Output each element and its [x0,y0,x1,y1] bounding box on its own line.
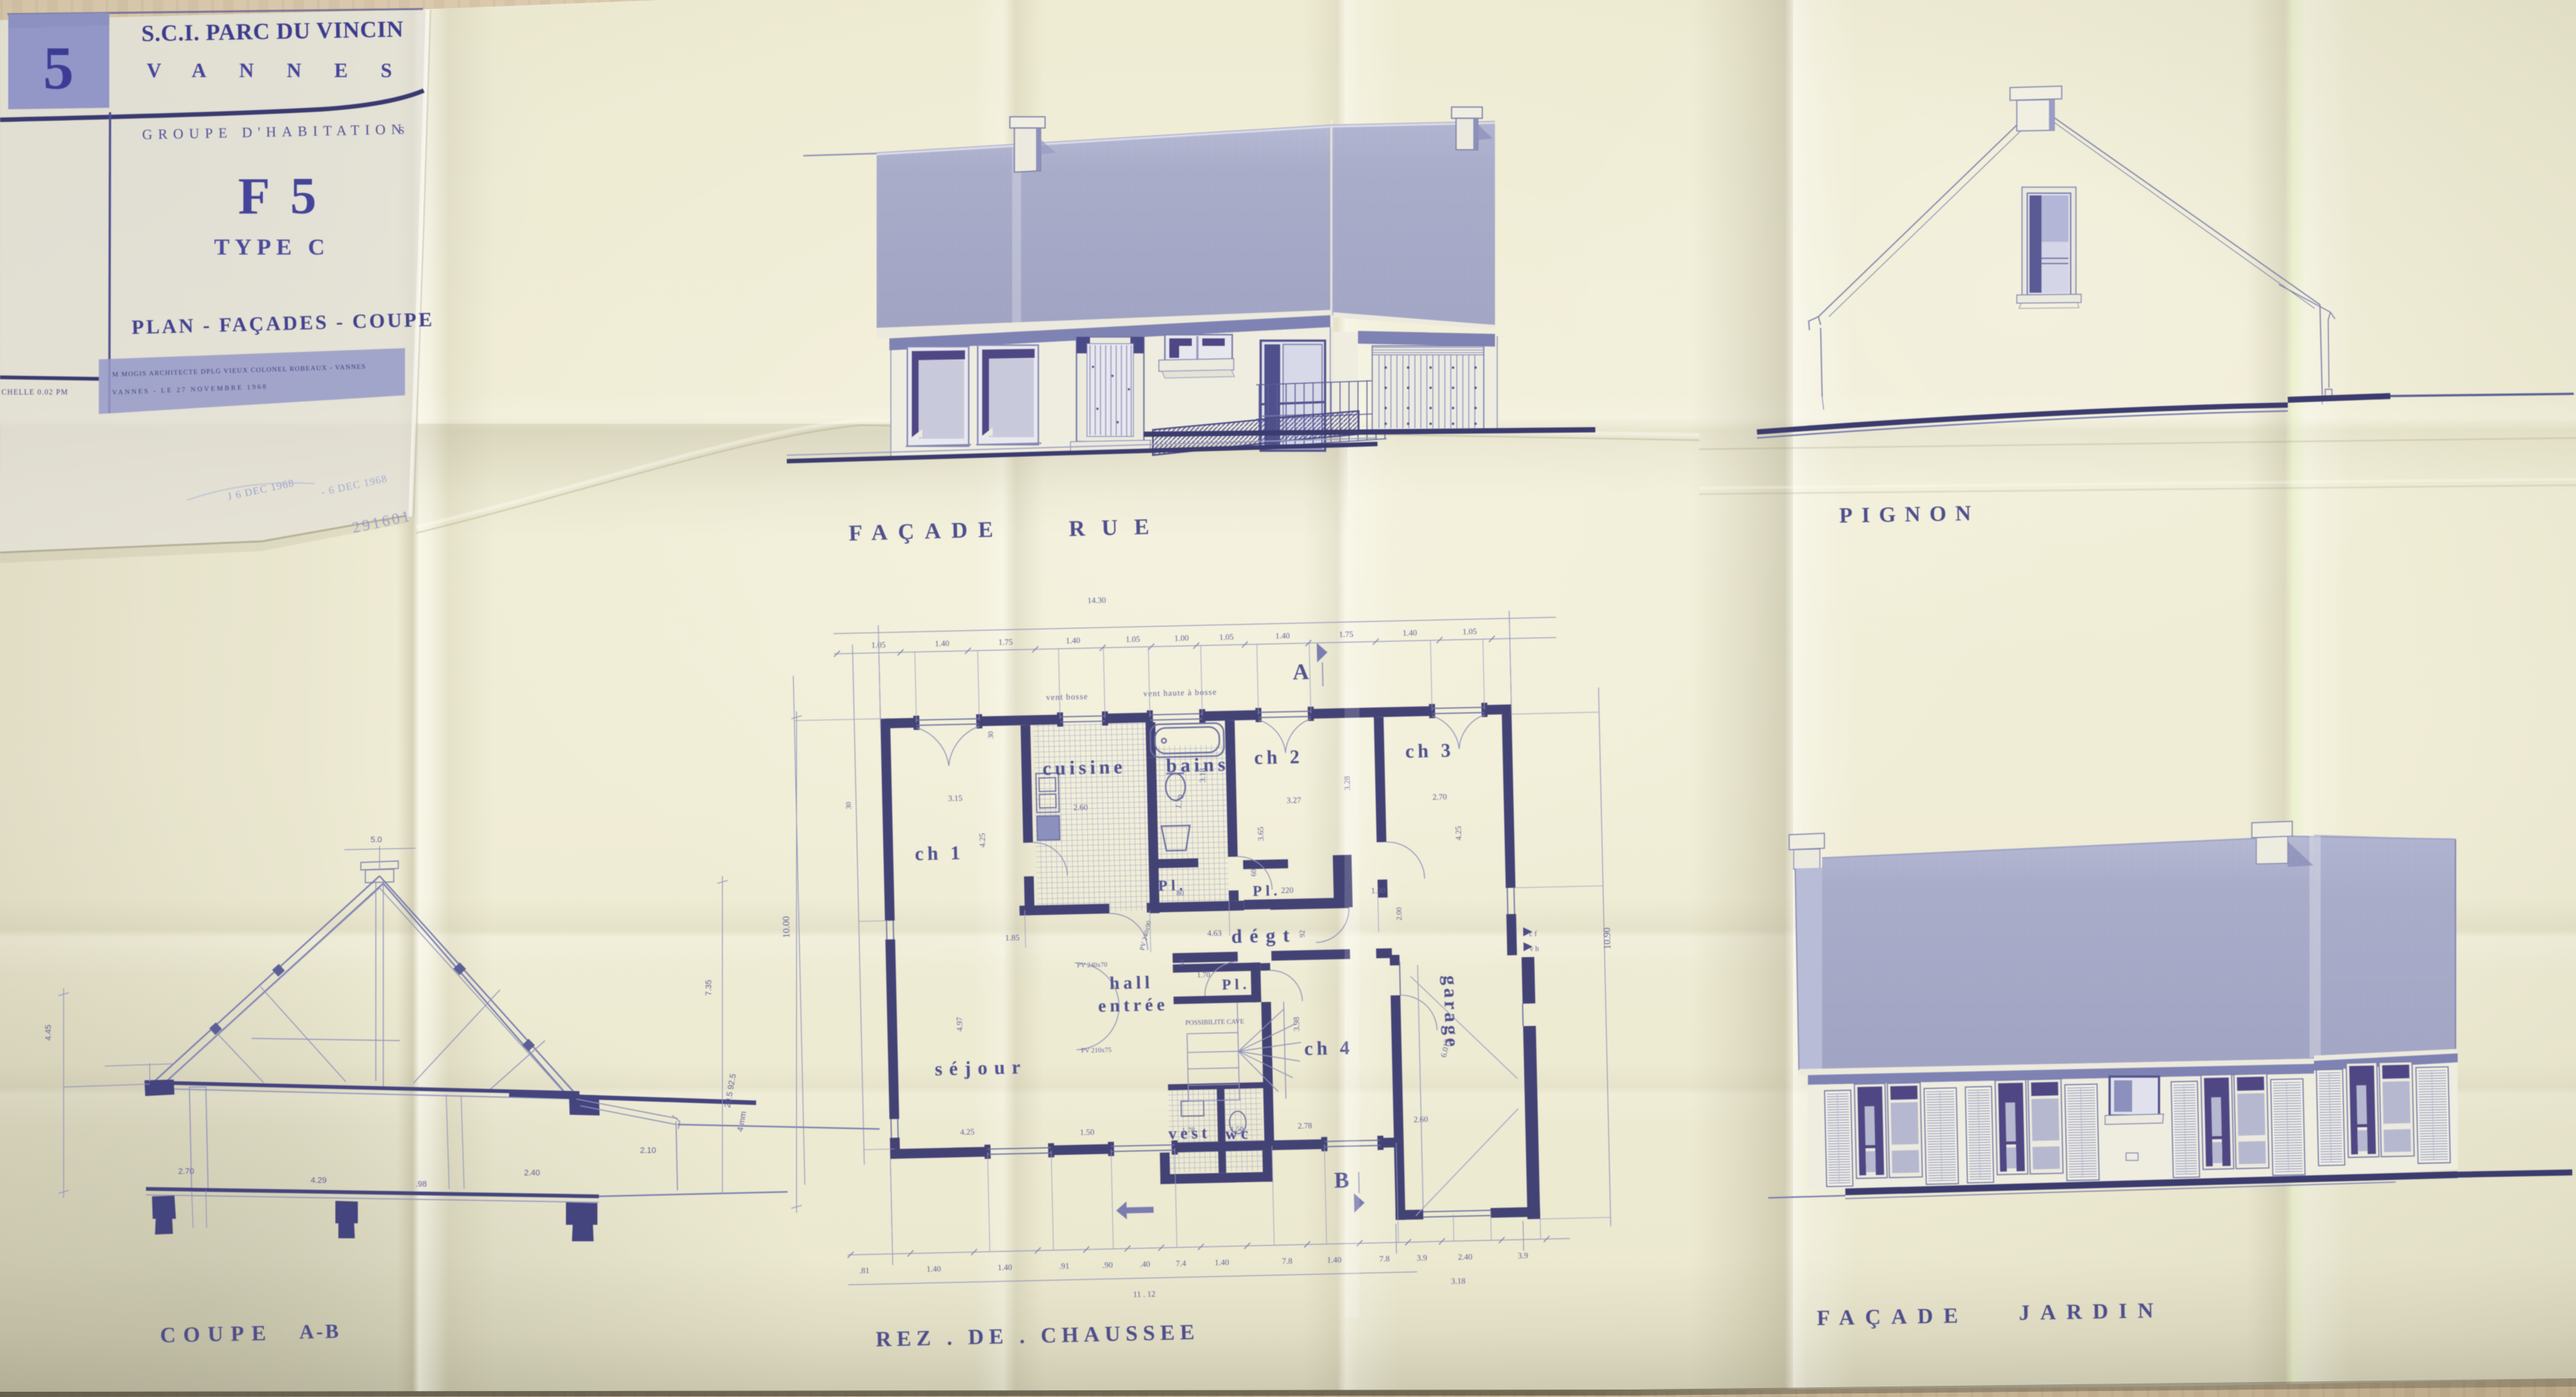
svg-text:10.00: 10.00 [780,916,792,939]
svg-text:4.97: 4.97 [955,1017,964,1032]
svg-text:4.45: 4.45 [44,1025,53,1041]
svg-text:2.70: 2.70 [178,1167,194,1176]
svg-text:ch 3: ch 3 [1405,740,1455,762]
svg-text:30: 30 [987,731,995,739]
svg-text:1.40: 1.40 [935,639,950,648]
svg-text:14.30: 14.30 [1087,596,1106,606]
svg-text:60: 60 [1250,869,1258,877]
svg-text:7.8: 7.8 [1379,1255,1390,1264]
svg-text:COUPE: COUPE [159,1321,273,1348]
svg-text:2.00: 2.00 [1395,907,1404,921]
svg-text:S.C.I. PARC DU VINCIN: S.C.I. PARC DU VINCIN [141,16,404,46]
svg-text:5: 5 [43,34,74,102]
svg-text:1.40: 1.40 [998,1263,1013,1272]
svg-text:.90: .90 [1103,1261,1114,1270]
svg-text:7.8: 7.8 [1282,1257,1293,1266]
svg-text:FAÇADE: FAÇADE [848,517,1004,546]
svg-text:dégt: dégt [1231,924,1297,947]
svg-text:1.40: 1.40 [1327,1256,1342,1264]
svg-text:JARDIN: JARDIN [2019,1299,2164,1325]
svg-text:1.70: 1.70 [1197,971,1211,979]
svg-text:1.50: 1.50 [1080,1128,1094,1137]
svg-text:PV 210x75: PV 210x75 [1081,1046,1112,1054]
svg-text:1.40: 1.40 [1214,1258,1229,1267]
svg-text:3.65: 3.65 [1256,827,1265,841]
svg-text:CHELLE 0.02 PM: CHELLE 0.02 PM [1,389,68,397]
svg-text:1.50: 1.50 [1230,1125,1243,1133]
svg-text:Pl.: Pl. [1222,976,1250,993]
svg-text:1.05: 1.05 [1220,633,1234,642]
svg-text:FAÇADE: FAÇADE [1817,1303,1969,1330]
svg-text:3.9: 3.9 [1416,1254,1428,1263]
svg-text:92: 92 [1299,930,1307,937]
svg-text:REZ . DE . CHAUSSEE: REZ . DE . CHAUSSEE [875,1321,1199,1352]
svg-text:7.4: 7.4 [1175,1259,1187,1268]
svg-text:1.40: 1.40 [1276,632,1291,641]
svg-text:2.40: 2.40 [524,1169,540,1178]
svg-text:80: 80 [1176,889,1184,898]
svg-text:2.10: 2.10 [640,1146,656,1155]
svg-text:2.70: 2.70 [1432,793,1447,802]
svg-text:RUE: RUE [1068,514,1166,541]
svg-text:1.05: 1.05 [1462,627,1477,636]
svg-text:PV 240x70: PV 240x70 [1077,961,1107,969]
svg-text:cuisine: cuisine [1042,756,1126,780]
svg-text:ch 1: ch 1 [915,842,964,865]
svg-text:2.60: 2.60 [1074,803,1088,812]
svg-text:4.29: 4.29 [311,1176,326,1185]
svg-text:1.00: 1.00 [1371,886,1386,895]
svg-text:vent haute à bosse: vent haute à bosse [1143,688,1217,698]
svg-text:3.15: 3.15 [948,794,963,803]
svg-text:S: S [398,125,404,137]
svg-text:VANNES: VANNES [147,59,425,82]
svg-text:.40: .40 [1139,1260,1151,1269]
svg-text:A: A [1292,660,1309,684]
svg-text:.98: .98 [415,1180,427,1189]
svg-text:F 5: F 5 [238,168,321,225]
svg-text:4.25: 4.25 [978,833,987,847]
svg-text:3.27: 3.27 [1286,796,1301,805]
svg-text:Pl.: Pl. [1252,883,1281,900]
svg-text:10.90: 10.90 [1601,928,1613,950]
svg-text:PIGNON: PIGNON [1839,502,1981,528]
svg-text:1.75: 1.75 [999,638,1014,647]
svg-text:3.98: 3.98 [1292,1017,1301,1032]
svg-text:vent bosse: vent bosse [1046,693,1088,702]
svg-text:1.00: 1.00 [1175,634,1190,643]
svg-text:1.40: 1.40 [927,1264,942,1273]
svg-text:2.60: 2.60 [1413,1116,1428,1124]
svg-text:4.25: 4.25 [1454,826,1463,841]
svg-text:1.78: 1.78 [1181,1127,1195,1135]
svg-text:1.40: 1.40 [1402,629,1417,638]
svg-text:entrée: entrée [1098,995,1169,1016]
svg-text:7.35: 7.35 [704,980,713,996]
svg-text:30: 30 [845,802,853,809]
svg-text:5.0: 5.0 [371,836,382,844]
svg-text:3.18: 3.18 [1451,1276,1466,1285]
svg-text:séjour: séjour [934,1056,1027,1080]
svg-text:11 . 12: 11 . 12 [1133,1290,1155,1300]
svg-text:1.05: 1.05 [1126,635,1141,644]
svg-text:3.9: 3.9 [1517,1252,1529,1261]
svg-text:.81: .81 [859,1267,870,1276]
svg-text:4.25: 4.25 [960,1127,975,1136]
svg-text:1.85: 1.85 [1005,934,1020,943]
svg-text:1.40: 1.40 [1066,636,1081,645]
svg-text:hall: hall [1109,973,1154,993]
svg-text:220: 220 [1281,886,1294,895]
svg-text:bains: bains [1166,753,1229,776]
svg-text:ch 2: ch 2 [1254,746,1303,768]
svg-text:2.78: 2.78 [1297,1121,1312,1130]
svg-text:4.63: 4.63 [1207,929,1222,938]
svg-text:3.18: 3.18 [1199,767,1208,782]
svg-text:A-B: A-B [299,1320,341,1343]
svg-text:TYPE C: TYPE C [214,234,330,260]
svg-text:1.75: 1.75 [1339,630,1354,639]
svg-text:60: 60 [1178,959,1185,967]
svg-text:2.40: 2.40 [1458,1253,1473,1261]
svg-text:POSSIBILITE CAVE: POSSIBILITE CAVE [1185,1017,1244,1026]
svg-text:4 mm: 4 mm [736,1110,749,1132]
svg-text:.91: .91 [1059,1261,1070,1270]
